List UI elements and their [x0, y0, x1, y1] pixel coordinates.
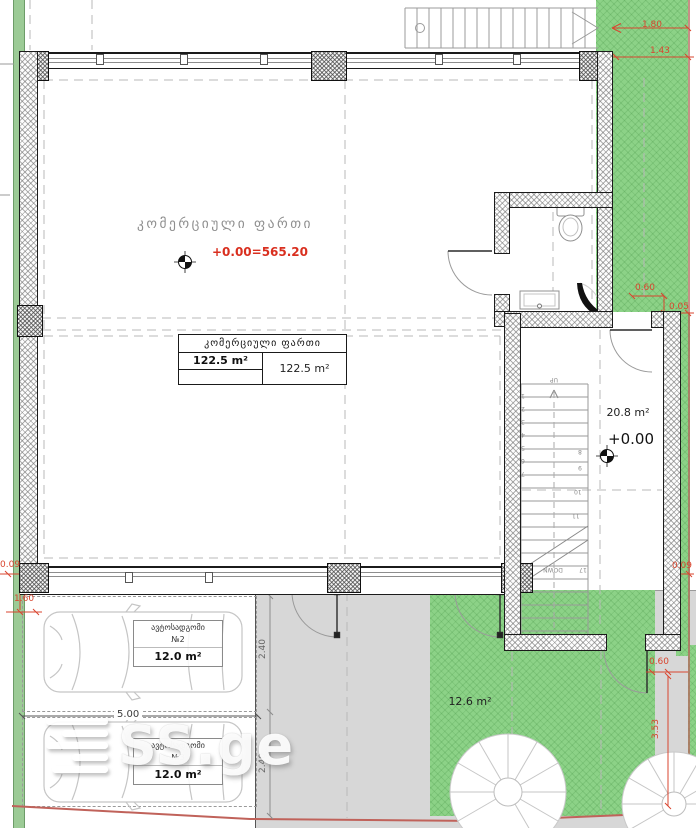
dim-stall-width: 5.00 [114, 709, 142, 720]
dim-right-lower-a: 0.60 [644, 657, 674, 667]
step-number: 3 [521, 412, 525, 425]
step-number: 2 [521, 399, 525, 412]
step-number: 6 [521, 451, 525, 464]
toilet-icon [557, 206, 584, 241]
stair-down-label: DOWN [536, 566, 570, 573]
dim-stall-depth-1: 2.40 [258, 631, 268, 667]
step-number: 8 [578, 448, 582, 455]
parking-stall-1-label: ავტოსადგომი №2 12.0 m² [133, 620, 223, 667]
column [312, 52, 346, 80]
dimension-lines-red [0, 24, 694, 810]
window-mullion [180, 54, 188, 65]
stair-step-total: 17 [576, 566, 590, 573]
wc-wall-top [495, 193, 612, 207]
step-number: 9 [578, 464, 582, 471]
floor-plan-canvas: კომერციული ფართი +0.00=565.20 კომერციული… [0, 0, 696, 828]
stairwell-wall-left [505, 314, 520, 650]
dim-left-b: 1.60 [14, 594, 44, 604]
window-mullion [513, 54, 521, 65]
dim-right-upper-a: 0.60 [630, 283, 660, 293]
area-table-header: კომერციული ფართი [179, 335, 346, 353]
lawn-area-label: 12.6 m² [438, 695, 502, 708]
tree-icon [450, 734, 566, 828]
stall-number: №2 [134, 633, 222, 645]
dim-top-offset: 1.80 [636, 20, 668, 30]
plan-linework [0, 0, 696, 828]
east-wall [598, 52, 612, 326]
area-table-cell-empty [179, 370, 262, 384]
sink-icon [520, 291, 559, 309]
exterior-stair-icon [405, 8, 598, 48]
step-number: 4 [521, 425, 525, 438]
stairwell-wall-bottom-right [646, 635, 680, 650]
stair-treads [521, 384, 588, 635]
grid-dashed-lines [30, 0, 662, 818]
stall-title: ავტოსადგომი [134, 739, 222, 751]
step-number: 11 [572, 512, 580, 519]
step-number: 10 [574, 488, 582, 495]
stall-number: №3 [134, 751, 222, 763]
dim-right-upper-b: 0.05 [664, 302, 694, 312]
window-mullion [125, 572, 133, 583]
stall-area: 12.0 m² [134, 765, 222, 784]
area-table: კომერციული ფართი 122.5 m² 122.5 m² [178, 334, 347, 385]
step-number: 5 [521, 438, 525, 451]
step-number: 7 [521, 464, 525, 477]
window-mullion [96, 54, 104, 65]
stairwell-wall-right [664, 312, 680, 650]
dim-stall-depth-2: 2.40 [258, 745, 268, 781]
dim-right-mid: 0.09 [668, 561, 696, 571]
area-table-cell: 122.5 m² [263, 353, 346, 384]
room-name-label: კომერციული ფართი [120, 216, 330, 232]
south-storefront-band [20, 566, 520, 595]
site-boundary-line [0, 0, 696, 828]
wc-wall-left-upper [495, 193, 509, 253]
stairwell-elevation-label: +0.00 [598, 430, 664, 448]
parking-stall-2-label: ავტოსადგომი №3 12.0 m² [133, 738, 223, 785]
stairwell-wall-top-left [505, 312, 612, 327]
stairwell-area-label: 20.8 m² [598, 406, 658, 419]
stall-title: ავტოსადგომი [134, 621, 222, 633]
tree-icon [622, 752, 696, 828]
stall-area: 12.0 m² [134, 647, 222, 666]
level-marker-icon [596, 445, 618, 467]
column [18, 306, 42, 336]
stairwell-wall-bottom-left [505, 635, 606, 650]
window-mullion [205, 572, 213, 583]
window-mullion [435, 54, 443, 65]
step-number: 1 [521, 386, 525, 399]
dim-right-lower-b: 3.53 [651, 711, 661, 747]
area-table-cell: 122.5 m² [179, 353, 262, 370]
window-mullion [260, 54, 268, 65]
stair-up-label: UP [546, 376, 562, 383]
stair-step-numbers-left: 1 2 3 4 5 6 7 [521, 386, 525, 477]
room-elevation-label: +0.00=565.20 [185, 245, 335, 259]
dim-top-setback: 1.43 [644, 46, 676, 56]
column [328, 564, 360, 592]
dim-left-a: 0.09 [0, 560, 26, 570]
